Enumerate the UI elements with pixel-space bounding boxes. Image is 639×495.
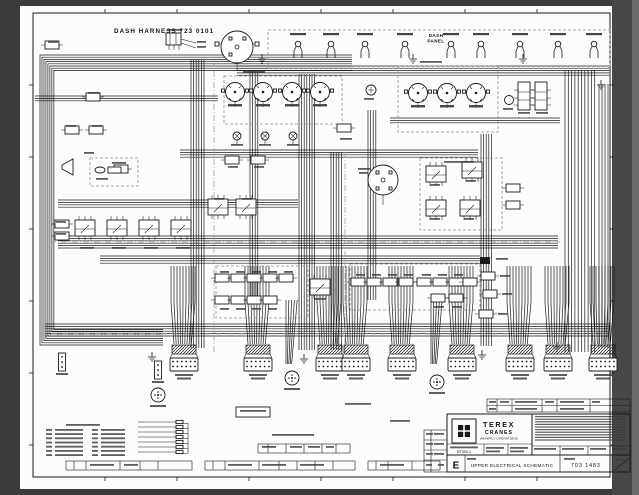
- legend-terminal: [176, 435, 183, 438]
- microtext-smudge: [88, 92, 100, 94]
- microtext-smudge: [228, 166, 238, 168]
- microtext-smudge: [326, 446, 334, 448]
- company-name: TEREX: [483, 420, 515, 429]
- microtext-smudge: [515, 401, 537, 403]
- microtext-smudge: [356, 274, 365, 276]
- model-number: RT300-1: [457, 450, 471, 454]
- revision-letter: E: [453, 461, 460, 472]
- microtext-smudge: [112, 162, 126, 164]
- microtext-smudge: [256, 104, 270, 106]
- microtext-smudge: [466, 180, 476, 182]
- microtext-smudge: [96, 178, 108, 180]
- paper-sheet: [20, 6, 612, 489]
- microtext-smudge: [534, 448, 556, 450]
- microtext-smudge: [55, 429, 83, 431]
- microtext-smudge: [430, 184, 440, 186]
- microtext-smudge: [434, 433, 444, 435]
- microtext-smudge: [512, 33, 528, 35]
- microtext-smudge: [515, 408, 537, 410]
- microtext-smudge: [454, 274, 463, 276]
- microtext-smudge: [46, 446, 52, 448]
- microtext-smudge: [359, 172, 368, 174]
- microtext-smudge: [510, 451, 524, 453]
- microtext-smudge: [90, 464, 114, 466]
- microtext-smudge: [66, 125, 76, 127]
- microtext-smudge: [55, 437, 83, 439]
- microtext-smudge: [92, 433, 98, 435]
- microtext-smudge: [323, 33, 339, 35]
- microtext-smudge: [220, 271, 229, 273]
- microtext-smudge: [510, 447, 528, 449]
- microtext-smudge: [535, 429, 625, 430]
- schematic-screenshot: TEREX CRANES WAVERLY OPERATIONS RT300-1 …: [0, 0, 639, 495]
- splice-block: [480, 257, 490, 264]
- microtext-smudge: [500, 275, 510, 277]
- microtext-smudge: [144, 247, 158, 249]
- microtext-smudge: [242, 198, 252, 200]
- microtext-smudge: [388, 274, 397, 276]
- drawing-number: 703 1483: [571, 463, 601, 469]
- microtext-smudge: [469, 105, 483, 107]
- legend-terminal: [176, 440, 183, 443]
- microtext-smudge: [518, 112, 530, 114]
- microtext-smudge: [430, 218, 440, 220]
- microtext-smudge: [55, 454, 83, 456]
- microtext-smudge: [612, 448, 626, 450]
- microtext-smudge: [101, 429, 125, 431]
- microtext-smudge: [101, 454, 125, 456]
- microtext-smudge: [438, 464, 444, 466]
- fuse: [95, 167, 105, 173]
- microtext-smudge: [290, 33, 306, 35]
- microtext-smudge: [489, 408, 496, 410]
- microtext-smudge: [486, 447, 504, 449]
- microtext-smudge: [496, 258, 508, 260]
- microtext-smudge: [404, 274, 413, 276]
- microtext-smudge: [308, 446, 320, 448]
- microtext-smudge: [124, 464, 138, 466]
- microtext-smudge: [243, 71, 265, 73]
- microtext-smudge: [66, 424, 100, 426]
- microtext-smudge: [228, 104, 242, 106]
- microtext-smudge: [272, 434, 314, 436]
- microtext-smudge: [48, 41, 58, 43]
- microtext-smudge: [426, 443, 433, 445]
- microtext-smudge: [357, 33, 373, 35]
- microtext-smudge: [560, 401, 584, 403]
- microtext-smudge: [262, 464, 286, 466]
- microtext-smudge: [92, 125, 102, 127]
- microtext-smudge: [411, 105, 425, 107]
- microtext-smudge: [101, 442, 125, 444]
- microtext-smudge: [545, 401, 554, 403]
- schematic-drawing: TEREX CRANES WAVERLY OPERATIONS RT300-1 …: [0, 0, 639, 495]
- microtext-smudge: [340, 138, 352, 140]
- microtext-smudge: [176, 247, 190, 249]
- microtext-smudge: [592, 401, 600, 403]
- microtext-smudge: [197, 46, 206, 48]
- microtext-smudge: [473, 33, 489, 35]
- microtext-smudge: [590, 448, 606, 450]
- microtext-smudge: [397, 33, 413, 35]
- microtext-smudge: [562, 448, 584, 450]
- microtext-smudge: [486, 451, 500, 453]
- microtext-smudge: [364, 98, 374, 100]
- microtext-smudge: [92, 429, 98, 431]
- drawing-title: UPPER ELECTRICAL SCHEMATIC: [471, 463, 554, 468]
- microtext-smudge: [444, 161, 474, 163]
- microtext-smudge: [46, 454, 52, 456]
- microtext-smudge: [535, 432, 625, 433]
- legend-terminal: [176, 430, 183, 433]
- legend-terminal: [176, 425, 183, 428]
- microtext-smudge: [101, 437, 125, 439]
- microtext-smudge: [452, 306, 462, 308]
- microtext-smudge: [46, 450, 52, 452]
- legend-terminal: [176, 420, 183, 423]
- microtext-smudge: [55, 446, 83, 448]
- microtext-smudge: [502, 293, 512, 295]
- microtext-smudge: [55, 442, 83, 444]
- microtext-smudge: [262, 446, 276, 448]
- window-matte: [0, 0, 639, 495]
- microtext-smudge: [616, 459, 625, 461]
- microtext-smudge: [101, 450, 125, 452]
- microtext-smudge: [535, 439, 625, 440]
- microtext-smudge: [535, 421, 625, 422]
- microtext-smudge: [80, 247, 94, 249]
- harness-title: DASH HARNESS 723 0101: [114, 28, 214, 35]
- microtext-smudge: [535, 434, 625, 435]
- microtext-smudge: [92, 442, 98, 444]
- microtext-smudge: [440, 105, 454, 107]
- microtext-smudge: [536, 112, 548, 114]
- legend-terminal: [176, 450, 183, 453]
- microtext-smudge: [426, 433, 433, 435]
- company-division: CRANES: [485, 430, 513, 436]
- microtext-smudge: [434, 443, 444, 445]
- microtext-smudge: [560, 408, 584, 410]
- microtext-smudge: [101, 433, 125, 435]
- microtext-smudge: [300, 464, 324, 466]
- microtext-smudge: [101, 446, 125, 448]
- microtext-smudge: [434, 306, 444, 308]
- detail-box: [236, 407, 270, 417]
- microtext-smudge: [92, 450, 98, 452]
- microtext-smudge: [268, 271, 277, 273]
- microtext-smudge: [236, 271, 245, 273]
- microtext-smudge: [56, 233, 66, 235]
- microtext-smudge: [220, 308, 229, 310]
- microtext-smudge: [46, 437, 52, 439]
- microtext-smudge: [498, 313, 508, 315]
- microtext-smudge: [290, 446, 302, 448]
- microtext-smudge: [314, 298, 326, 300]
- microtext-smudge: [503, 108, 513, 110]
- microtext-smudge: [313, 104, 327, 106]
- microtext-smudge: [586, 33, 602, 35]
- microtext-smudge: [214, 198, 224, 200]
- microtext-smudge: [422, 274, 431, 276]
- microtext-smudge: [500, 401, 509, 403]
- microtext-smudge: [535, 437, 625, 438]
- microtext-smudge: [240, 410, 266, 412]
- company-operations: WAVERLY OPERATIONS: [480, 437, 518, 441]
- microtext-smudge: [284, 271, 293, 273]
- microtext-smudge: [550, 33, 566, 35]
- microtext-smudge: [564, 458, 575, 460]
- microtext-smudge: [535, 426, 625, 427]
- microtext-smudge: [84, 152, 94, 154]
- microtext-smudge: [112, 247, 126, 249]
- microtext-smudge: [467, 458, 476, 460]
- microtext-smudge: [535, 416, 625, 417]
- microtext-smudge: [228, 464, 252, 466]
- microtext-smudge: [426, 453, 433, 455]
- microtext-smudge: [55, 433, 83, 435]
- microtext-smudge: [55, 450, 83, 452]
- microtext-smudge: [46, 433, 52, 435]
- microtext-smudge: [287, 144, 299, 146]
- microtext-smudge: [92, 454, 98, 456]
- microtext-smudge: [345, 403, 371, 405]
- microtext-smudge: [254, 166, 264, 168]
- microtext-smudge: [236, 308, 245, 310]
- microtext-smudge: [535, 419, 625, 420]
- microtext-smudge: [438, 274, 447, 276]
- microtext-smudge: [443, 33, 459, 35]
- microtext-smudge: [259, 144, 271, 146]
- microtext-smudge: [358, 168, 370, 170]
- microtext-smudge: [450, 447, 478, 449]
- microtext-smudge: [535, 424, 625, 425]
- microtext-smudge: [46, 442, 52, 444]
- microtext-smudge: [231, 144, 243, 146]
- microtext-smudge: [464, 218, 474, 220]
- microtext-smudge: [252, 271, 261, 273]
- microtext-smudge: [390, 420, 410, 422]
- microtext-smudge: [46, 429, 52, 431]
- small-sender-circle: [505, 96, 514, 105]
- legend-terminal: [176, 445, 183, 448]
- microtext-smudge: [380, 464, 404, 466]
- microtext-smudge: [252, 308, 261, 310]
- microtext-smudge: [489, 401, 496, 403]
- relay: [310, 275, 330, 299]
- microtext-smudge: [372, 274, 381, 276]
- microtext-smudge: [92, 437, 98, 439]
- dash-panel-label-line1: DASH: [429, 33, 444, 38]
- microtext-smudge: [426, 464, 432, 466]
- microtext-smudge: [56, 221, 66, 223]
- microtext-smudge: [197, 41, 206, 43]
- microtext-smudge: [285, 104, 299, 106]
- microtext-smudge: [434, 453, 444, 455]
- microtext-smudge: [92, 446, 98, 448]
- dash-panel-label-line2: PANEL: [427, 39, 444, 44]
- microtext-smudge: [268, 308, 277, 310]
- microtext-smudge: [420, 61, 442, 63]
